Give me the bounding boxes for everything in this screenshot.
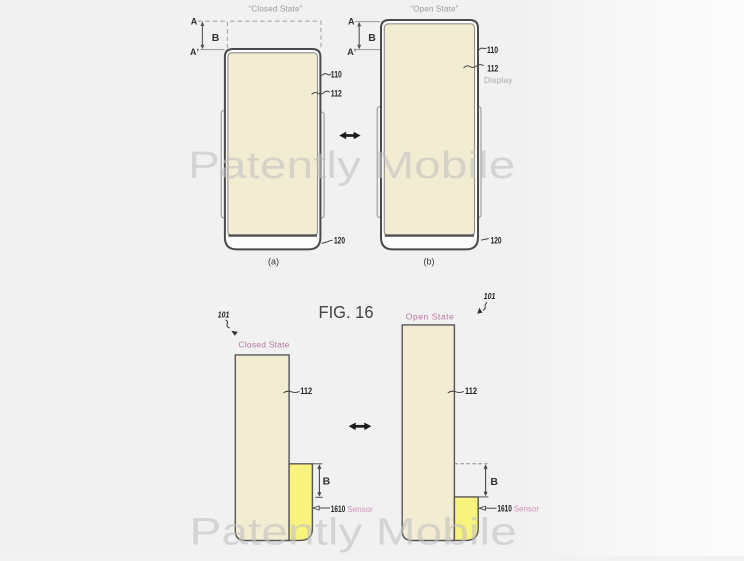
svg-text:101: 101 (218, 309, 230, 319)
svg-text:A: A (348, 17, 355, 27)
svg-text:112: 112 (300, 386, 312, 397)
svg-text:112: 112 (465, 386, 477, 397)
svg-text:A: A (191, 17, 198, 27)
svg-text:110: 110 (487, 45, 498, 56)
svg-text:Display: Display (484, 75, 513, 85)
svg-text:120: 120 (491, 236, 502, 247)
svg-text:110: 110 (331, 70, 342, 81)
svg-text:(a): (a) (268, 256, 279, 266)
svg-text:Patently Mobile: Patently Mobile (190, 511, 517, 553)
svg-text:Closed State: Closed State (239, 340, 290, 350)
svg-text:FIG. 16: FIG. 16 (319, 302, 374, 322)
svg-text:“Closed State”: “Closed State” (249, 4, 303, 13)
svg-text:B: B (490, 476, 498, 488)
svg-text:Aʼ: Aʼ (190, 47, 199, 57)
svg-text:101: 101 (484, 291, 496, 301)
svg-text:Patently Mobile: Patently Mobile (188, 145, 515, 187)
svg-text:B: B (368, 32, 376, 44)
svg-text:112: 112 (331, 88, 342, 99)
svg-text:Sensor: Sensor (514, 505, 540, 514)
svg-text:(b): (b) (424, 256, 435, 266)
svg-text:112: 112 (487, 64, 498, 75)
svg-text:B: B (212, 32, 220, 44)
svg-text:“Open State”: “Open State” (410, 4, 458, 13)
svg-text:B: B (323, 475, 331, 487)
svg-text:Open State: Open State (406, 312, 455, 322)
svg-text:Aʼ: Aʼ (347, 47, 356, 57)
svg-text:120: 120 (334, 236, 345, 247)
